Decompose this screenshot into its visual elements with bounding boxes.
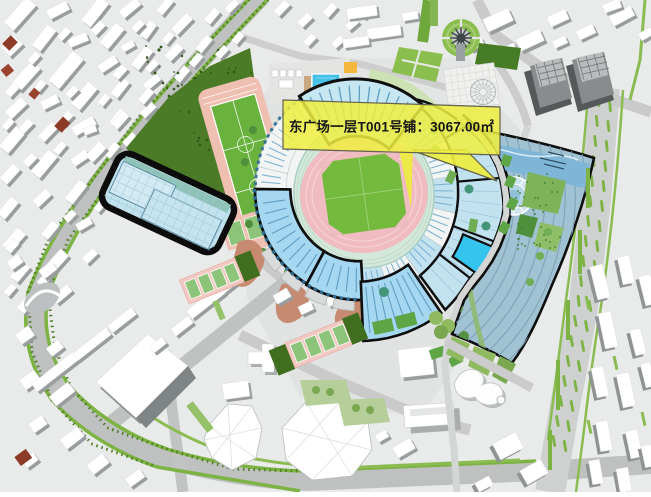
- svg-text:东广场一层T001号铺：3067.00㎡: 东广场一层T001号铺：3067.00㎡: [289, 119, 494, 135]
